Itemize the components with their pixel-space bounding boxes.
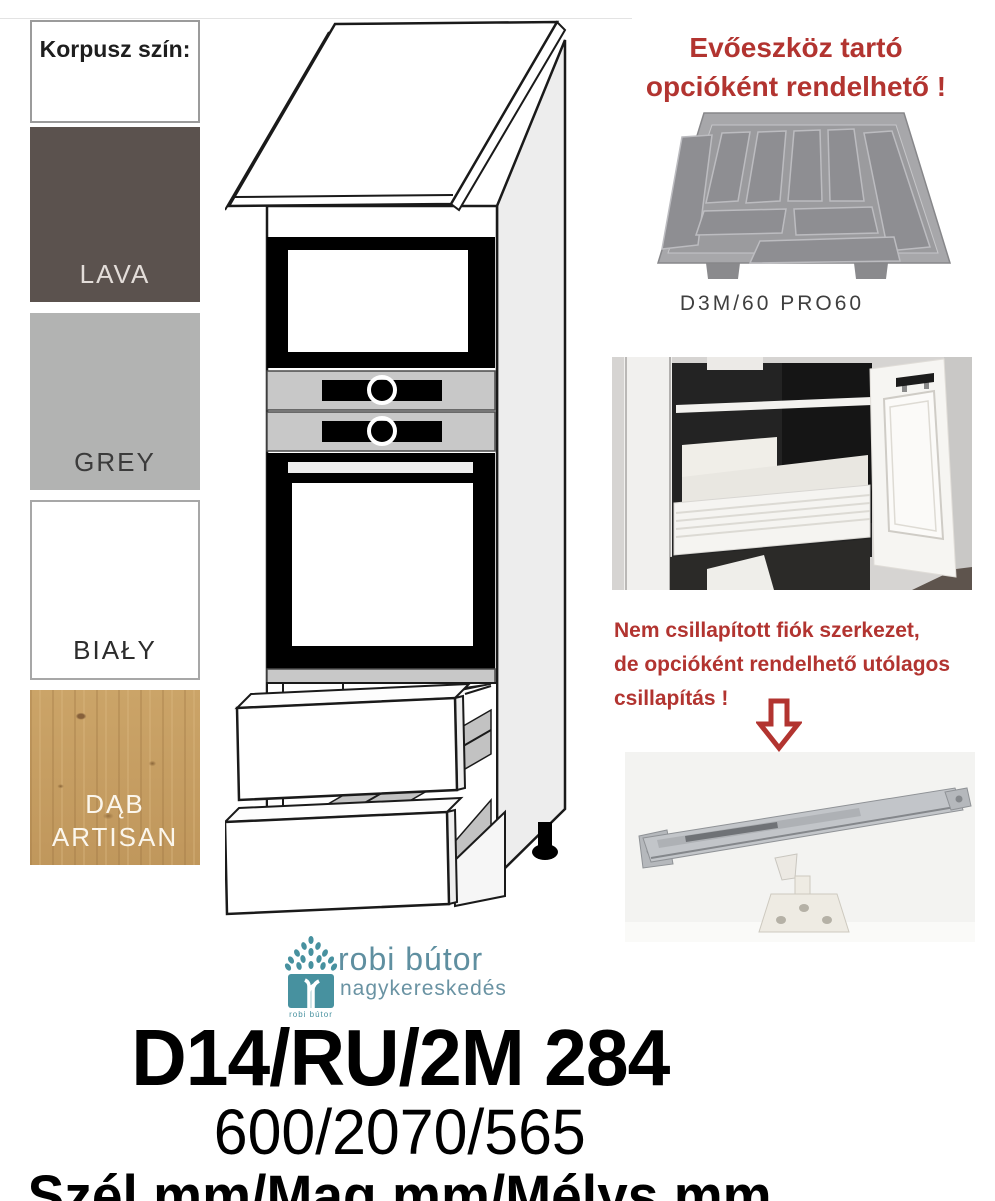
cutlery-option-title: Evőeszköz tartó opcióként rendelhető !	[608, 28, 984, 106]
oven-window	[292, 483, 473, 646]
color-swatch-dab-artisan: DĄB ARTISAN	[30, 690, 200, 865]
corpus-color-header: Korpusz szín:	[30, 20, 200, 123]
logo-subtitle: nagykereskedés	[340, 977, 507, 1001]
cabinet-line-drawing	[225, 10, 575, 930]
color-swatch-bialy: BIAŁY	[30, 500, 200, 680]
swatch-label: GREY	[40, 446, 190, 479]
drawer-2-front	[225, 812, 449, 914]
adjustable-foot	[538, 822, 552, 846]
cutlery-option-title-line2: opcióként rendelhető !	[608, 67, 984, 106]
oven-handle	[288, 462, 473, 473]
drawer-photo	[612, 357, 972, 590]
cutlery-tray-caption: D3M/60 PRO60	[622, 292, 922, 316]
drawer-slide-photo	[625, 752, 975, 942]
swatch-label: BIAŁY	[40, 634, 190, 667]
microwave-window	[288, 250, 468, 352]
damping-note-line3: csillapítás !	[614, 682, 994, 716]
tree-leaves	[284, 936, 339, 972]
corpus-color-header-label: Korpusz szín:	[40, 36, 191, 121]
cabinet-side-panel	[497, 40, 565, 876]
swatch-label: DĄB ARTISAN	[40, 788, 190, 853]
cutlery-option-title-line1: Evőeszköz tartó	[608, 28, 984, 67]
damping-note-line1: Nem csillapított fiók szerkezet,	[614, 614, 994, 648]
product-dimensions: 600/2070/565	[214, 1100, 586, 1164]
cabinet-stile	[624, 357, 672, 590]
mount-bracket	[759, 894, 849, 932]
damping-note-line2: de opcióként rendelhető utólagos	[614, 648, 994, 682]
product-dimensions-label: Szél.mm/Mag.mm/Mélys.mm	[28, 1168, 772, 1201]
down-arrow-icon	[756, 698, 802, 752]
drawer-1-front	[237, 698, 457, 800]
logo-name: robi bútor	[338, 941, 483, 978]
product-flyer: Korpusz szín: LAVA GREY BIAŁY DĄB ARTISA…	[0, 0, 995, 1201]
logo-square	[288, 974, 334, 1008]
color-swatch-grey: GREY	[30, 313, 200, 490]
product-info: D14/RU/2M 284 600/2070/565 Szél.mm/Mag.m…	[0, 1018, 800, 1201]
product-code: D14/RU/2M 284	[131, 1018, 669, 1098]
cutlery-tray-image	[648, 103, 960, 295]
robi-butor-logo-icon	[283, 934, 339, 1012]
swatch-label: LAVA	[40, 258, 190, 291]
color-swatch-lava: LAVA	[30, 127, 200, 302]
damping-note: Nem csillapított fiók szerkezet, de opci…	[614, 614, 994, 716]
